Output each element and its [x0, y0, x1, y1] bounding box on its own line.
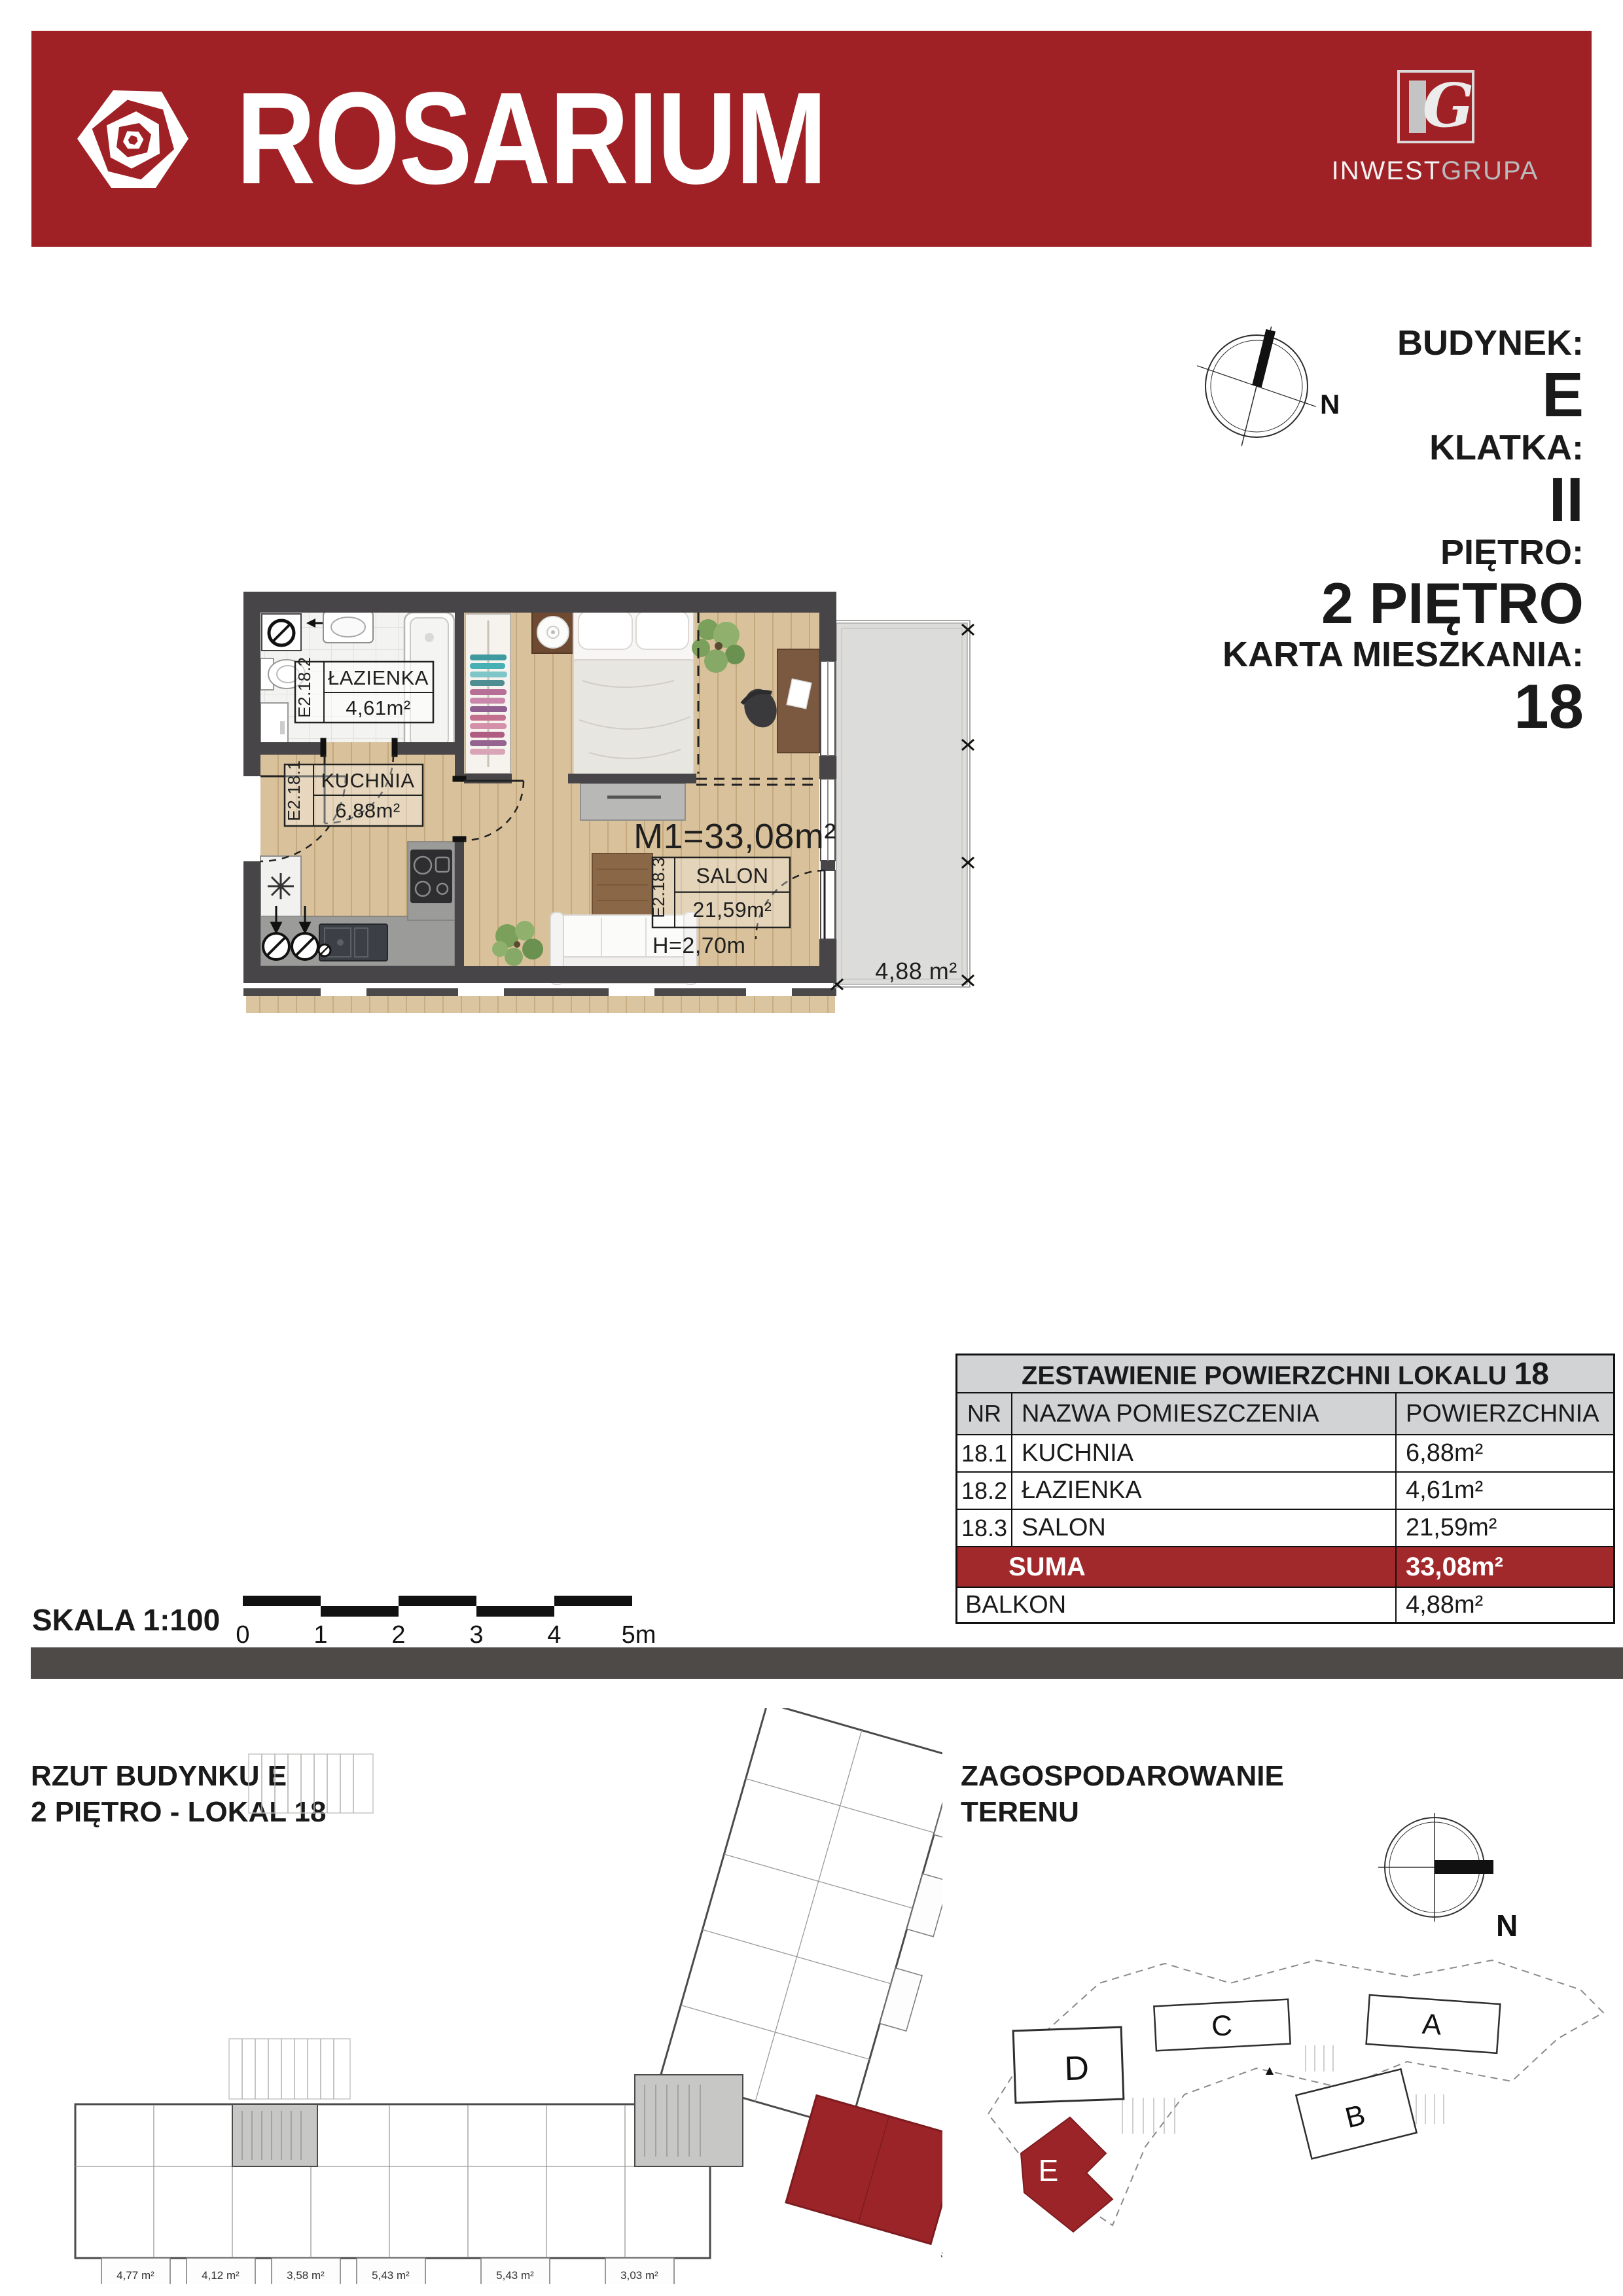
wardrobe: [465, 614, 510, 774]
klatka-value: II: [995, 469, 1584, 531]
suma-value: 33,08m²: [1396, 1547, 1614, 1587]
karta-value: 18: [995, 675, 1584, 738]
diagonal-wing: [661, 1708, 942, 2136]
svg-text:ŁAZIENKA: ŁAZIENKA: [328, 666, 429, 689]
svg-text:4,77 m²: 4,77 m²: [116, 2269, 154, 2282]
inwestgrupa-monogram: I G: [1397, 70, 1474, 143]
svg-text:D: D: [1063, 2049, 1090, 2088]
bathroom-sink: [323, 611, 373, 643]
row-nr: 18.3: [957, 1509, 1012, 1547]
row-area: 6,88m²: [1396, 1435, 1614, 1472]
suma-label: SUMA: [957, 1547, 1397, 1587]
fridge-star-icon: [268, 873, 294, 899]
balkon-value: 4,88m²: [1396, 1587, 1614, 1623]
building-e-highlighted: E: [1021, 2117, 1113, 2232]
header-banner: ROSARIUM I G INWESTGRUPA: [31, 31, 1592, 247]
neighbour-unit-strip: [243, 988, 836, 1013]
side-table: [532, 611, 574, 653]
svg-text:4,61m²: 4,61m²: [346, 696, 410, 719]
horizontal-wing: 4,77 m² 4,12 m² 3,58 m² 5,43 m² 5,43 m² …: [75, 2104, 710, 2284]
kitchen-sink: [319, 924, 387, 961]
budynek-label: BUDYNEK:: [995, 322, 1584, 364]
table-row: 18.2 ŁAZIENKA 4,61m²: [957, 1472, 1614, 1509]
rosarium-rose-icon: [77, 90, 192, 191]
svg-text:4: 4: [547, 1621, 561, 1648]
coffee-table: [592, 853, 652, 915]
header-area: POWIERZCHNIA: [1396, 1393, 1614, 1435]
pietro-value: 2 PIĘTRO: [995, 573, 1584, 634]
building-c: C: [1154, 2000, 1290, 2051]
row-area: 4,61m²: [1396, 1472, 1614, 1509]
site-plan: N C A B D: [949, 1767, 1623, 2291]
budynek-value: E: [995, 364, 1584, 427]
svg-text:A: A: [1421, 2008, 1443, 2041]
row-nr: 18.2: [957, 1472, 1012, 1509]
building-d: D: [1013, 2027, 1124, 2103]
balkon-label: BALKON: [957, 1587, 1397, 1623]
svg-text:E: E: [1039, 2153, 1059, 2187]
svg-text:3,58 m²: 3,58 m²: [287, 2269, 325, 2282]
row-name: KUCHNIA: [1012, 1435, 1396, 1472]
table-row: 18.1 KUCHNIA 6,88m²: [957, 1435, 1614, 1472]
scale-bar: 0 1 2 3 4 5m: [216, 1583, 687, 1648]
wordmark-grupa: GRUPA: [1441, 156, 1539, 185]
total-area-label: M1=33,08m²: [633, 817, 836, 856]
building-a: A: [1366, 1995, 1501, 2053]
svg-text:3: 3: [469, 1621, 483, 1648]
svg-text:E2.18.2: E2.18.2: [294, 656, 314, 717]
parking-rows: [229, 1754, 373, 2099]
highlighted-apartment: 5,44 m²: [783, 2096, 942, 2270]
brand-name: ROSARIUM: [236, 31, 826, 247]
row-area: 21,59m²: [1396, 1509, 1614, 1547]
svg-text:3,03 m²: 3,03 m²: [620, 2269, 658, 2282]
svg-text:5,43 m²: 5,43 m²: [496, 2269, 534, 2282]
row-nr: 18.1: [957, 1435, 1012, 1472]
apartment-card-page: ROSARIUM I G INWESTGRUPA N BUDYNEK: E KL…: [0, 0, 1623, 2296]
desk: [777, 649, 819, 753]
svg-text:5m: 5m: [622, 1621, 656, 1648]
svg-text:21,59m²: 21,59m²: [693, 898, 772, 922]
site-compass-n-label: N: [1496, 1909, 1518, 1943]
bed: [573, 606, 694, 775]
scale-label: SKALA 1:100: [32, 1602, 220, 1638]
table-header-row: NR NAZWA POMIESZCZENIA POWIERZCHNIA: [957, 1393, 1614, 1435]
svg-text:1: 1: [313, 1621, 327, 1648]
table-title-number: 18: [1514, 1357, 1549, 1391]
table-title-row: ZESTAWIENIE POWIERZCHNI LOKALU 18: [957, 1355, 1614, 1393]
svg-text:KUCHNIA: KUCHNIA: [321, 769, 414, 792]
hob: [410, 850, 452, 903]
svg-text:SALON: SALON: [696, 864, 769, 888]
pietro-label: PIĘTRO:: [995, 531, 1584, 573]
washing-machine: [262, 614, 301, 651]
karta-label: KARTA MIESZKANIA:: [995, 634, 1584, 675]
svg-text:E2.18.1: E2.18.1: [284, 760, 304, 821]
site-compass-icon: N: [1378, 1813, 1518, 1943]
table-title: ZESTAWIENIE POWIERZCHNI LOKALU: [1022, 1361, 1507, 1390]
apartment-floorplan: E2.18.2 ŁAZIENKA 4,61m² E2.18.1 KUCHNIA …: [242, 583, 975, 1013]
klatka-label: KLATKA:: [995, 427, 1584, 469]
balkon-row: BALKON 4,88m²: [957, 1587, 1614, 1623]
balcony-area-label: 4,88 m²: [875, 958, 957, 984]
kitchen-label: E2.18.1 KUCHNIA 6,88m²: [284, 760, 423, 826]
svg-text:E2.18.3: E2.18.3: [649, 857, 668, 918]
building-b: B: [1296, 2069, 1416, 2159]
area-summary-table: ZESTAWIENIE POWIERZCHNI LOKALU 18 NR NAZ…: [955, 1354, 1615, 1624]
suma-row: SUMA 33,08m²: [957, 1547, 1614, 1587]
svg-text:2: 2: [391, 1621, 405, 1648]
unit-info-block: BUDYNEK: E KLATKA: II PIĘTRO: 2 PIĘTRO K…: [995, 322, 1584, 738]
header-name: NAZWA POMIESZCZENIA: [1012, 1393, 1396, 1435]
svg-text:6,88m²: 6,88m²: [335, 799, 400, 822]
svg-text:5,43 m²: 5,43 m²: [372, 2269, 410, 2282]
inwestgrupa-wordmark: INWESTGRUPA: [1294, 156, 1576, 186]
table-row: 18.3 SALON 21,59m²: [957, 1509, 1614, 1547]
building-floor-plan: 4,77 m² 4,12 m² 3,58 m² 5,43 m² 5,43 m² …: [65, 1708, 942, 2284]
sideboard: [580, 783, 685, 820]
salon-label: E2.18.3 SALON 21,59m²: [649, 857, 790, 927]
wordmark-inwest: INWEST: [1332, 156, 1442, 185]
ceiling-height-label: H=2,70m: [652, 933, 745, 958]
svg-text:4,12 m²: 4,12 m²: [202, 2269, 240, 2282]
section-divider: [31, 1647, 1623, 1679]
site-buildings: C A B D E: [1013, 1995, 1500, 2232]
header-nr: NR: [957, 1393, 1012, 1435]
svg-text:C: C: [1211, 2009, 1233, 2043]
svg-text:0: 0: [236, 1621, 249, 1648]
row-name: SALON: [1012, 1509, 1396, 1547]
balcony: [831, 620, 974, 990]
svg-text:5,44 m²: 5,44 m²: [939, 2248, 942, 2270]
row-name: ŁAZIENKA: [1012, 1472, 1396, 1509]
monogram-g: G: [1422, 70, 1474, 141]
bathroom-label: E2.18.2 ŁAZIENKA 4,61m²: [294, 656, 433, 723]
